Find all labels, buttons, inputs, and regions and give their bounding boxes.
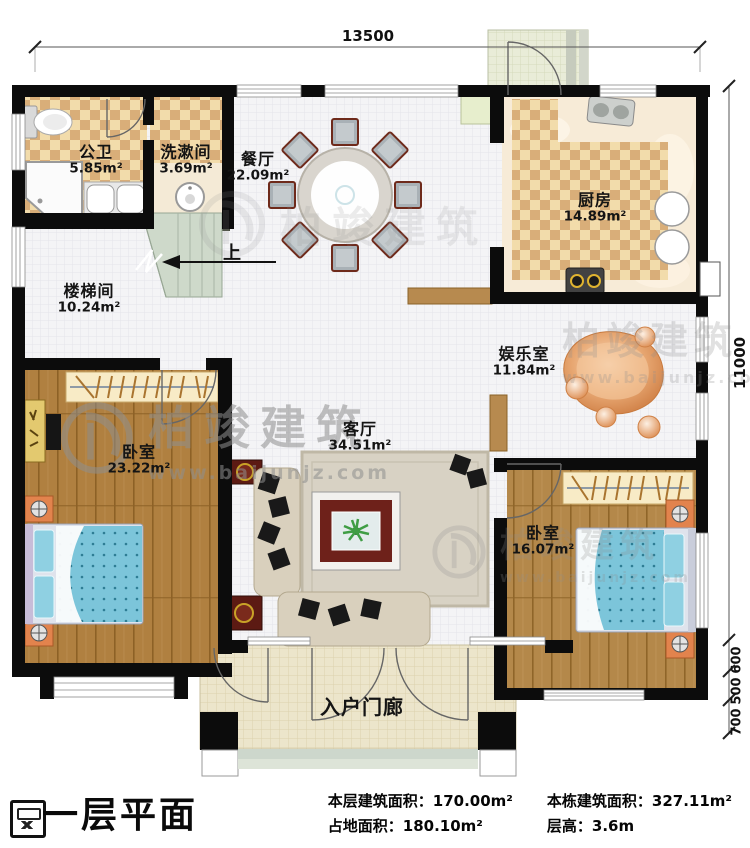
room-label-wash: 洗漱间 3.69m² bbox=[159, 143, 212, 176]
kitchen-basin bbox=[655, 230, 689, 264]
stool bbox=[566, 377, 588, 399]
stat-building-area: 本栋建筑面积：327.11m² bbox=[547, 790, 732, 811]
porch-pillar bbox=[478, 712, 516, 750]
fridge bbox=[461, 96, 491, 124]
room-label-stairwell: 楼梯间 10.24m² bbox=[58, 282, 121, 315]
plan-title: 一层平面图 bbox=[42, 786, 235, 848]
pillar-base bbox=[202, 750, 238, 776]
dimension-offset-700: 700 bbox=[730, 708, 745, 735]
kitchen-side-door bbox=[700, 262, 720, 296]
tv-cabinet bbox=[25, 400, 45, 462]
dining-table-set bbox=[269, 119, 421, 271]
counter bbox=[408, 288, 492, 304]
room-label-bedroom-left: 卧室 23.22m² bbox=[108, 443, 171, 476]
dimension-offset-600: 600 bbox=[730, 646, 745, 673]
tv bbox=[46, 414, 61, 450]
dimension-top-width: 13500 bbox=[342, 27, 394, 45]
porch-pillar bbox=[200, 712, 238, 750]
kitchen-basin bbox=[655, 192, 689, 226]
stool bbox=[635, 327, 655, 347]
kitchen-sink bbox=[587, 96, 635, 127]
room-label-bath: 公卫 5.85m² bbox=[69, 143, 122, 176]
room-label-dining: 餐厅 22.09m² bbox=[227, 150, 290, 183]
stool bbox=[596, 407, 616, 427]
area-stats: 本层建筑面积：170.00m² 占地面积：180.10m² 本栋建筑面积：327… bbox=[328, 790, 732, 836]
dimension-offset-500: 500 bbox=[730, 677, 745, 704]
stat-floor-height: 层高：3.6m bbox=[547, 815, 732, 836]
bedroom-right-furniture bbox=[563, 472, 696, 658]
stool bbox=[638, 416, 660, 438]
title-block: 一层平面图 1:100 本层建筑面积：170.00m² 占地面积：180.10m… bbox=[42, 786, 732, 848]
porch-step bbox=[238, 759, 478, 769]
stat-floor-area: 本层建筑面积：170.00m² bbox=[328, 790, 513, 811]
dimension-right-height: 11000 bbox=[731, 337, 749, 389]
room-label-recreation: 娱乐室 11.84m² bbox=[493, 345, 556, 378]
bed bbox=[25, 524, 143, 624]
room-label-porch: 入户门廊 bbox=[320, 696, 404, 718]
room-label-bedroom-right: 卧室 16.07m² bbox=[512, 524, 575, 557]
corner-stamp bbox=[10, 800, 46, 838]
room-label-living: 客厅 34.51m² bbox=[329, 420, 392, 453]
stat-footprint-area: 占地面积：180.10m² bbox=[328, 815, 513, 836]
porch-step bbox=[238, 749, 478, 759]
cabinet bbox=[490, 395, 507, 451]
stairs-up-label: 上 bbox=[223, 239, 241, 265]
room-label-kitchen: 厨房 14.89m² bbox=[564, 191, 627, 224]
floor-plan-page: 柏竣建筑 柏竣建筑 www.baijunjz.com 柏竣建筑 www.baij… bbox=[0, 0, 750, 848]
pillar-base bbox=[480, 750, 516, 776]
bed bbox=[576, 528, 696, 632]
